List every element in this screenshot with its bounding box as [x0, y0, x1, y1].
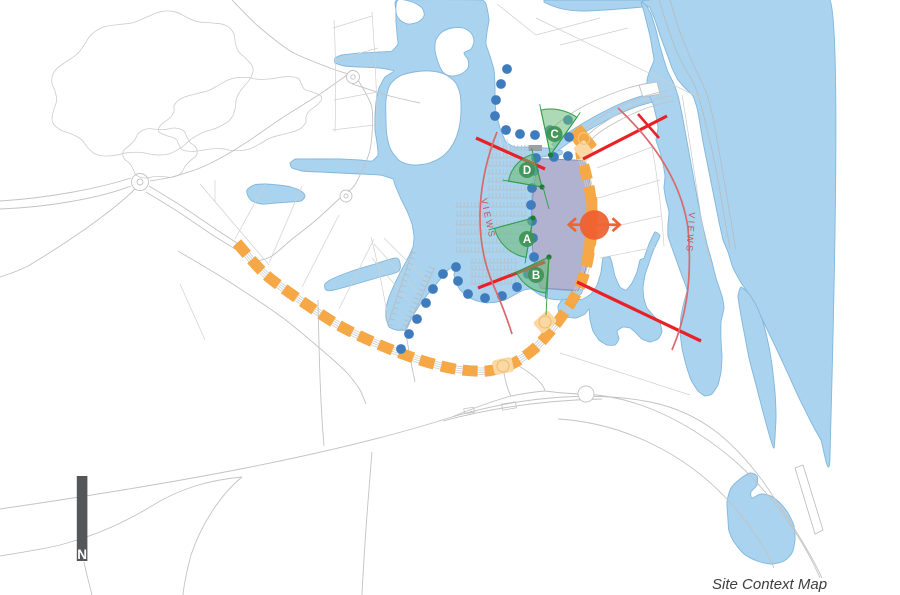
svg-text:N: N — [77, 547, 87, 562]
svg-text:D: D — [523, 165, 531, 177]
svg-text:C: C — [550, 129, 558, 141]
svg-text:B: B — [532, 270, 540, 282]
svg-text:A: A — [523, 234, 531, 246]
svg-text:Site Context Map: Site Context Map — [712, 576, 827, 593]
